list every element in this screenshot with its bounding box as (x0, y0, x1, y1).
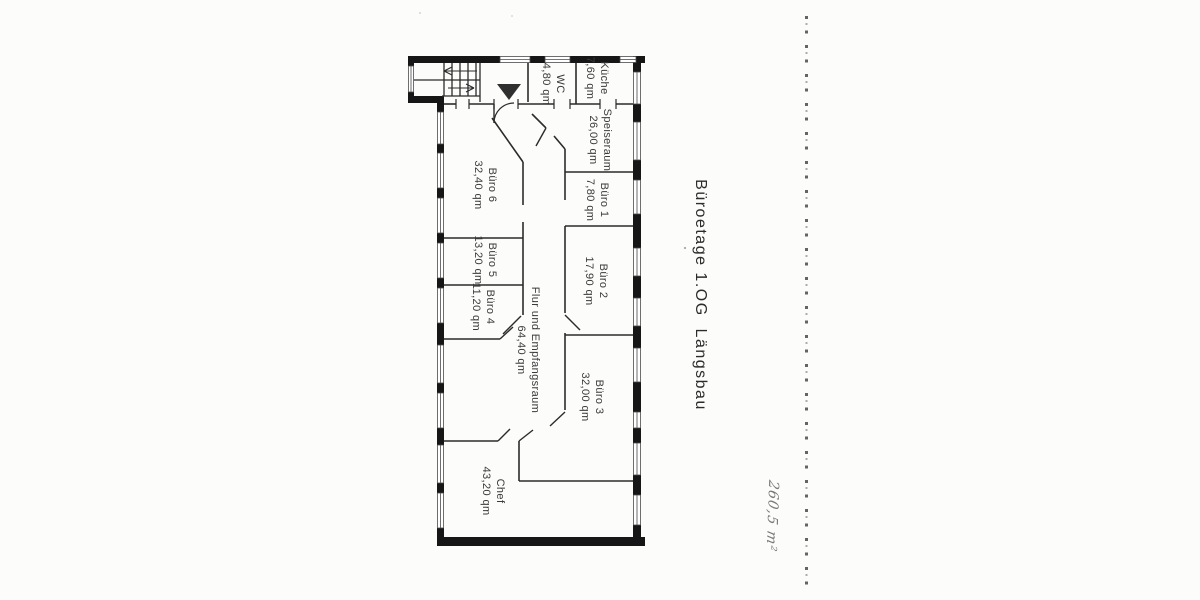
room-label-wc: WC 4,80 qm (539, 63, 567, 106)
room-area: 7,80 qm (583, 179, 597, 222)
room-area: 43,20 qm (479, 466, 493, 515)
room-label-buero-4: Büro 4 11,20 qm (469, 283, 497, 331)
room-name: Chef (493, 479, 507, 504)
window (409, 66, 414, 92)
room-area: 32,00 qm (578, 372, 592, 421)
room-area: 32,40 qm (471, 160, 485, 209)
room-name: Büro 2 (596, 264, 610, 299)
room-area: 17,90 qm (582, 256, 596, 305)
room-name: Büro 6 (485, 168, 499, 203)
room-name: Büro 1 (597, 183, 611, 218)
room-label-buero-6: Büro 6 32,40 qm (471, 160, 499, 209)
entrance-symbol (494, 84, 521, 123)
room-name: Küche (597, 61, 611, 94)
room-label-speiseraum: Speiseraum 26,00 qm (586, 109, 614, 172)
drawing-title: Büroetage 1.OG Längsbau (691, 179, 709, 411)
room-name: Büro 5 (485, 243, 499, 278)
room-area: 64,40 qm (514, 325, 528, 374)
handwritten-area-note: 260,5 m² (763, 479, 781, 554)
room-name: Speiseraum (600, 109, 614, 172)
room-label-flur-empfangsraum: Flur und Empfangsraum 64,40 qm (514, 287, 542, 413)
room-name: Büro 4 (483, 290, 497, 325)
room-label-kueche: Küche 7,60 qm (583, 57, 611, 100)
room-name: Flur und Empfangsraum (528, 287, 542, 413)
room-name: Büro 3 (592, 380, 606, 415)
room-area: 26,00 qm (586, 115, 600, 164)
room-area: 13,20 qm (471, 235, 485, 284)
room-label-buero-2: Büro 2 17,90 qm (582, 256, 610, 305)
room-label-buero-5: Büro 5 13,20 qm (471, 235, 499, 284)
room-name: WC (553, 74, 567, 93)
scan-specks (419, 12, 686, 249)
window (634, 72, 641, 525)
entrance-triangle-icon (497, 84, 521, 100)
room-label-buero-1: Büro 1 7,80 qm (583, 179, 611, 222)
room-label-chef: Chef 43,20 qm (479, 466, 507, 515)
scanned-floorplan-page: WC 4,80 qm Küche 7,60 qm Speiseraum 26,0… (0, 0, 1200, 600)
room-area: 11,20 qm (469, 283, 483, 331)
room-label-buero-3: Büro 3 32,00 qm (578, 372, 606, 421)
room-area: 7,60 qm (583, 57, 597, 100)
room-area: 4,80 qm (539, 63, 553, 106)
window (438, 112, 444, 528)
